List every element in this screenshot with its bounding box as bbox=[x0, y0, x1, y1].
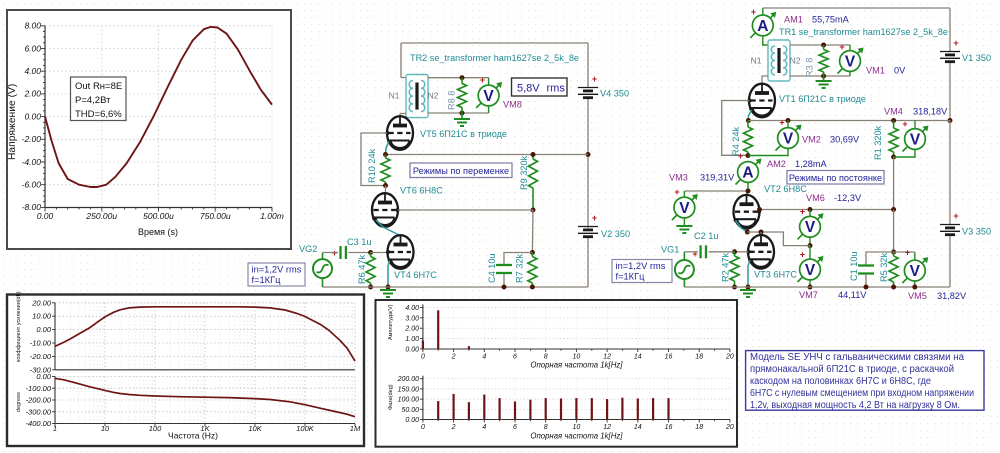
svg-text:12: 12 bbox=[603, 354, 611, 361]
svg-text:VM8: VM8 bbox=[503, 100, 522, 110]
svg-text:R10 24k: R10 24k bbox=[367, 148, 377, 183]
svg-text:VM3: VM3 bbox=[669, 173, 688, 183]
svg-text:8: 8 bbox=[544, 424, 548, 431]
svg-text:VT2 6Н8С: VT2 6Н8С bbox=[764, 184, 807, 194]
svg-text:0: 0 bbox=[421, 354, 425, 361]
svg-text:каскодом на половинках 6Н7С и: каскодом на половинках 6Н7С и 6Н8С, где bbox=[750, 376, 931, 387]
svg-text:AM2: AM2 bbox=[767, 159, 786, 169]
svg-text:0.00: 0.00 bbox=[405, 347, 419, 354]
svg-text:500.00u: 500.00u bbox=[143, 211, 174, 221]
svg-text:THD=6,6%: THD=6,6% bbox=[75, 109, 122, 120]
svg-text:VM2: VM2 bbox=[802, 135, 821, 145]
svg-text:+: + bbox=[751, 7, 756, 17]
svg-text:VT5 6П21С в триоде: VT5 6П21С в триоде bbox=[420, 129, 507, 139]
svg-text:250.00u: 250.00u bbox=[85, 211, 117, 221]
svg-text:-400.00: -400.00 bbox=[26, 419, 52, 428]
svg-text:4.00: 4.00 bbox=[24, 66, 41, 76]
svg-text:R6 47k: R6 47k bbox=[357, 254, 367, 284]
svg-text:V: V bbox=[805, 262, 816, 279]
svg-text:0.00: 0.00 bbox=[37, 211, 54, 221]
svg-text:V1 350: V1 350 bbox=[962, 53, 991, 63]
svg-text:1,2v, выходная мощность 4,2 Вт: 1,2v, выходная мощность 4,2 Вт на нагруз… bbox=[750, 400, 960, 411]
svg-text:VT1 6П21С в триоде: VT1 6П21С в триоде bbox=[779, 94, 866, 104]
svg-text:A: A bbox=[742, 164, 753, 181]
svg-text:6: 6 bbox=[513, 424, 517, 431]
svg-text:V: V bbox=[783, 130, 794, 147]
svg-text:R7 32k: R7 32k bbox=[515, 253, 525, 283]
svg-text:V: V bbox=[910, 131, 921, 148]
svg-text:V: V bbox=[679, 200, 690, 217]
svg-text:VM1: VM1 bbox=[866, 66, 885, 76]
svg-text:прямонакальной 6П21С в триоде,: прямонакальной 6П21С в триоде, с раскачк… bbox=[750, 364, 954, 375]
svg-text:VM7: VM7 bbox=[799, 290, 818, 300]
svg-text:12: 12 bbox=[603, 424, 611, 431]
svg-text:VM6: VM6 bbox=[806, 193, 825, 203]
svg-text:1.00: 1.00 bbox=[405, 336, 419, 343]
svg-text:10K: 10K bbox=[248, 424, 262, 433]
svg-text:N1: N1 bbox=[389, 91, 400, 101]
svg-text:Опорная частота 1k[Hz]: Опорная частота 1k[Hz] bbox=[530, 361, 623, 370]
svg-text:R9 320k: R9 320k bbox=[519, 155, 529, 190]
svg-text:0V: 0V bbox=[894, 66, 906, 76]
svg-text:4: 4 bbox=[482, 354, 486, 361]
svg-text:750.00u: 750.00u bbox=[200, 211, 231, 221]
svg-text:8: 8 bbox=[544, 354, 548, 361]
svg-text:16: 16 bbox=[665, 424, 673, 431]
svg-text:VT4 6Н7С: VT4 6Н7С bbox=[394, 270, 437, 280]
svg-text:A: A bbox=[757, 18, 768, 35]
svg-text:C3 1u: C3 1u bbox=[347, 237, 372, 247]
svg-text:318,18V: 318,18V bbox=[913, 107, 948, 117]
svg-text:Out Rн=8Е: Out Rн=8Е bbox=[75, 81, 122, 92]
svg-text:+: + bbox=[905, 248, 910, 258]
svg-text:20.00: 20.00 bbox=[31, 298, 52, 307]
svg-text:TR1 se_transformer ham1627se 2: TR1 se_transformer ham1627se 2_5k_8e bbox=[779, 27, 948, 38]
svg-text:18: 18 bbox=[695, 424, 703, 431]
svg-text:-100.00: -100.00 bbox=[26, 384, 52, 393]
svg-text:+: + bbox=[692, 249, 697, 259]
svg-text:rms: rms bbox=[547, 83, 566, 95]
svg-text:V2 350: V2 350 bbox=[601, 229, 630, 239]
svg-text:319,31V: 319,31V bbox=[700, 173, 735, 183]
svg-text:N2: N2 bbox=[790, 56, 801, 66]
svg-text:-6.00: -6.00 bbox=[22, 180, 42, 190]
svg-text:R3 8: R3 8 bbox=[805, 58, 815, 77]
svg-text:V4 350: V4 350 bbox=[600, 89, 629, 99]
svg-text:-4.00: -4.00 bbox=[22, 157, 42, 167]
svg-text:16: 16 bbox=[665, 354, 673, 361]
svg-text:V: V bbox=[845, 53, 856, 70]
svg-text:1,28mA: 1,28mA bbox=[795, 159, 828, 169]
svg-text:VG1: VG1 bbox=[661, 245, 679, 255]
svg-text:10.00: 10.00 bbox=[32, 312, 52, 321]
svg-text:+: + bbox=[592, 213, 597, 223]
svg-text:V: V bbox=[910, 263, 921, 280]
svg-text:Время (s): Время (s) bbox=[138, 227, 178, 237]
svg-text:Фаза(deg): Фаза(deg) bbox=[388, 384, 394, 410]
svg-text:-10.00: -10.00 bbox=[30, 339, 52, 348]
svg-text:0: 0 bbox=[421, 424, 425, 431]
svg-text:C1 10u: C1 10u bbox=[849, 251, 859, 281]
svg-text:+: + bbox=[800, 207, 805, 217]
svg-text:Модель SE УНЧ с гальваническим: Модель SE УНЧ с гальваническими связями … bbox=[750, 352, 964, 363]
svg-text:0.00: 0.00 bbox=[405, 417, 419, 424]
svg-text:degrees: degrees bbox=[16, 392, 22, 412]
svg-text:-12,3V: -12,3V bbox=[834, 193, 862, 203]
svg-text:f=1КГц: f=1КГц bbox=[616, 272, 646, 282]
svg-text:8.00: 8.00 bbox=[24, 21, 41, 31]
svg-text:Частота (Hz): Частота (Hz) bbox=[168, 431, 218, 441]
svg-text:6Н7С с нулевым смещением при в: 6Н7С с нулевым смещением при входном нап… bbox=[750, 388, 974, 399]
svg-text:in=1,2V rms: in=1,2V rms bbox=[252, 265, 302, 275]
svg-text:R5 32k: R5 32k bbox=[879, 252, 889, 282]
svg-text:N1: N1 bbox=[751, 56, 762, 66]
svg-text:Напряжение (V): Напряжение (V) bbox=[7, 84, 18, 160]
svg-text:6.00: 6.00 bbox=[24, 43, 41, 53]
svg-text:-20.00: -20.00 bbox=[30, 352, 52, 361]
svg-text:C2 1u: C2 1u bbox=[694, 231, 719, 241]
svg-text:150.00: 150.00 bbox=[398, 386, 420, 393]
svg-text:200.00: 200.00 bbox=[397, 376, 420, 383]
svg-text:AM1: AM1 bbox=[784, 15, 803, 25]
svg-text:+: + bbox=[839, 42, 844, 52]
svg-text:+: + bbox=[738, 151, 743, 161]
svg-text:Амплитуда(V): Амплитуда(V) bbox=[388, 304, 394, 340]
svg-text:+: + bbox=[953, 38, 958, 48]
svg-text:+: + bbox=[592, 74, 597, 84]
svg-text:-300.00: -300.00 bbox=[26, 407, 52, 416]
svg-text:+: + bbox=[953, 211, 958, 221]
svg-text:-200.00: -200.00 bbox=[26, 396, 52, 405]
svg-text:+: + bbox=[779, 118, 784, 128]
svg-text:R8 8: R8 8 bbox=[447, 91, 457, 110]
svg-text:+: + bbox=[902, 119, 907, 129]
svg-text:100.00: 100.00 bbox=[398, 397, 420, 404]
svg-text:+: + bbox=[800, 250, 805, 260]
svg-text:-2.00: -2.00 bbox=[22, 134, 42, 144]
svg-text:0.00: 0.00 bbox=[24, 111, 41, 121]
svg-text:10: 10 bbox=[573, 354, 581, 361]
svg-text:5,8V: 5,8V bbox=[517, 83, 540, 95]
svg-text:10: 10 bbox=[573, 424, 581, 431]
svg-text:VT3 6Н7С: VT3 6Н7С bbox=[754, 270, 797, 280]
svg-text:1.00m: 1.00m bbox=[260, 211, 284, 221]
svg-text:20: 20 bbox=[725, 354, 734, 361]
svg-text:V: V bbox=[805, 219, 816, 236]
svg-text:20: 20 bbox=[725, 424, 734, 431]
svg-text:VT6 6Н8С: VT6 6Н8С bbox=[400, 186, 443, 196]
svg-text:14: 14 bbox=[634, 354, 642, 361]
svg-text:VG2: VG2 bbox=[299, 244, 317, 254]
svg-text:0.00: 0.00 bbox=[36, 325, 51, 334]
svg-text:Режимы по постоянке: Режимы по постоянке bbox=[789, 173, 882, 183]
svg-text:14: 14 bbox=[634, 424, 642, 431]
svg-text:31,82V: 31,82V bbox=[937, 291, 967, 301]
svg-text:TR2 se_transformer ham1627se 2: TR2 se_transformer ham1627se 2_5k_8e bbox=[410, 53, 579, 64]
svg-text:30,69V: 30,69V bbox=[830, 135, 860, 145]
svg-text:R2 47k: R2 47k bbox=[721, 252, 731, 282]
svg-text:Режимы по переменке: Режимы по переменке bbox=[413, 166, 509, 176]
svg-text:4.00: 4.00 bbox=[405, 305, 419, 312]
svg-text:VM5: VM5 bbox=[908, 291, 927, 301]
svg-text:44,11V: 44,11V bbox=[838, 290, 867, 300]
svg-text:+: + bbox=[480, 75, 485, 85]
svg-text:4: 4 bbox=[482, 424, 486, 431]
svg-text:0.00: 0.00 bbox=[36, 372, 51, 381]
svg-text:6: 6 bbox=[513, 354, 517, 361]
svg-text:in=1,2V rms: in=1,2V rms bbox=[616, 261, 666, 271]
svg-text:3.00: 3.00 bbox=[405, 315, 419, 322]
svg-text:P=4,2Вт: P=4,2Вт bbox=[75, 95, 111, 106]
svg-text:50.00: 50.00 bbox=[401, 407, 419, 414]
svg-text:V3 350: V3 350 bbox=[962, 227, 991, 237]
svg-text:55,75mA: 55,75mA bbox=[812, 15, 850, 25]
svg-text:Опорная частота 1k[Hz]: Опорная частота 1k[Hz] bbox=[530, 432, 623, 441]
svg-text:2.00: 2.00 bbox=[404, 326, 419, 333]
svg-text:R1 320k: R1 320k bbox=[873, 125, 883, 160]
svg-text:+: + bbox=[674, 187, 679, 197]
svg-text:коэффициент усиления(db): коэффициент усиления(db) bbox=[16, 291, 22, 362]
svg-text:18: 18 bbox=[695, 354, 703, 361]
svg-text:N2: N2 bbox=[428, 91, 439, 101]
svg-text:2.00: 2.00 bbox=[23, 89, 41, 99]
svg-text:100K: 100K bbox=[296, 424, 315, 433]
svg-text:VM4: VM4 bbox=[884, 107, 903, 117]
svg-text:2: 2 bbox=[451, 424, 456, 431]
svg-text:V: V bbox=[483, 88, 494, 105]
svg-text:f=1КГц: f=1КГц bbox=[252, 275, 282, 285]
svg-text:C4 10u: C4 10u bbox=[487, 253, 497, 283]
svg-text:2: 2 bbox=[451, 354, 456, 361]
